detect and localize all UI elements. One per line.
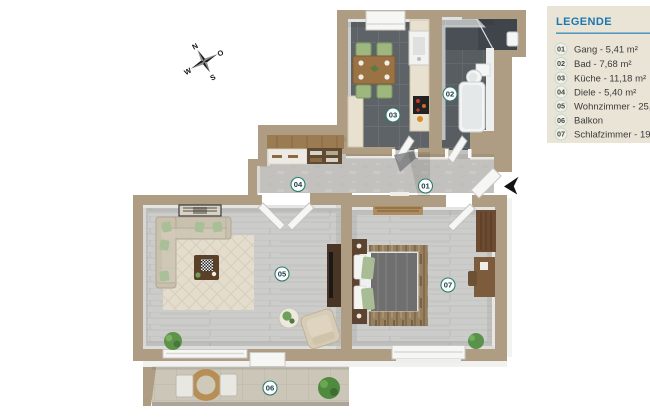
- svg-text:Balkon: Balkon: [574, 116, 603, 127]
- svg-text:04: 04: [294, 180, 303, 189]
- svg-text:Diele - 5,40 m²: Diele - 5,40 m²: [574, 87, 636, 98]
- svg-text:04: 04: [557, 88, 566, 97]
- svg-text:Küche - 11,18 m²: Küche - 11,18 m²: [574, 73, 646, 84]
- svg-text:01: 01: [557, 45, 565, 54]
- svg-text:07: 07: [444, 281, 452, 290]
- svg-text:05: 05: [278, 270, 287, 279]
- svg-text:Gang - 5,41 m²: Gang - 5,41 m²: [574, 44, 638, 55]
- svg-text:02: 02: [557, 59, 565, 68]
- svg-text:05: 05: [557, 102, 565, 111]
- svg-text:06: 06: [266, 384, 274, 393]
- svg-text:LEGENDE: LEGENDE: [556, 16, 612, 28]
- svg-text:Schlafzimmer - 19: Schlafzimmer - 19: [574, 129, 650, 140]
- svg-text:02: 02: [446, 90, 454, 99]
- svg-text:03: 03: [557, 74, 565, 83]
- svg-text:07: 07: [557, 130, 565, 139]
- svg-text:03: 03: [389, 111, 397, 120]
- svg-text:06: 06: [557, 116, 565, 125]
- svg-text:Wohnzimmer - 25,9: Wohnzimmer - 25,9: [574, 101, 650, 112]
- svg-text:Bad - 7,68 m²: Bad - 7,68 m²: [574, 59, 632, 70]
- svg-text:01: 01: [421, 182, 430, 191]
